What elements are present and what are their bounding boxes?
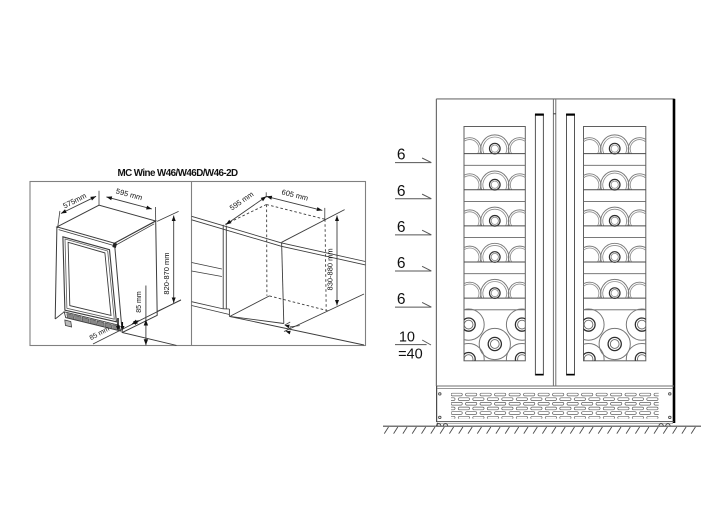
svg-text:830-880 mm: 830-880 mm — [326, 248, 335, 290]
svg-text:6: 6 — [397, 255, 406, 272]
svg-text:MC Wine W46/W46D/W46-2D: MC Wine W46/W46D/W46-2D — [117, 168, 238, 179]
svg-text:820-870 mm: 820-870 mm — [162, 252, 171, 294]
svg-text:=40: =40 — [398, 346, 423, 362]
svg-text:6: 6 — [397, 219, 406, 236]
svg-text:6: 6 — [397, 147, 406, 164]
svg-text:6: 6 — [397, 291, 406, 308]
svg-text:6: 6 — [397, 183, 406, 200]
svg-text:85 mm: 85 mm — [136, 291, 143, 313]
svg-text:10: 10 — [399, 330, 415, 346]
